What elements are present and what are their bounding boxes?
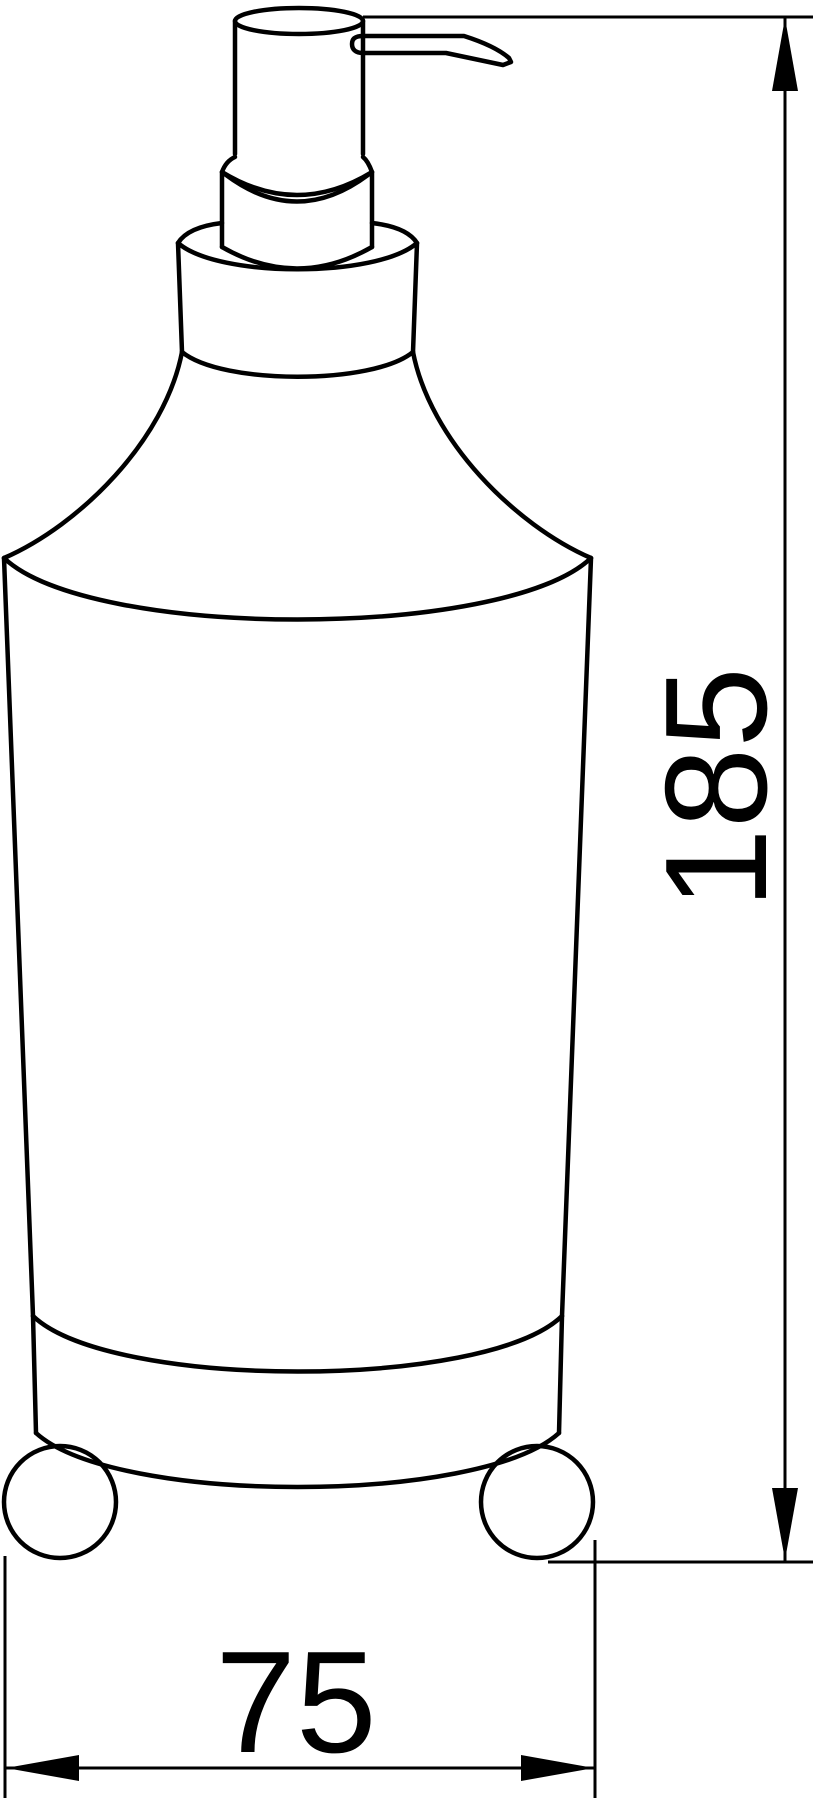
body-top-arc — [4, 558, 591, 620]
foot-left — [4, 1446, 116, 1558]
shoulder-right — [413, 352, 591, 558]
pump-top-ellipse — [235, 8, 363, 34]
body-side-left — [4, 558, 33, 1316]
dispenser-technical-drawing: 185 75 — [0, 0, 814, 1800]
soap-dispenser-outline — [4, 8, 593, 1558]
drawing-sheet: 185 75 — [0, 0, 814, 1800]
pump-actuator — [235, 8, 363, 154]
neck-back-arc-left — [178, 223, 222, 243]
body-side-right — [562, 558, 591, 1316]
width-arrow-left — [6, 1755, 79, 1781]
neck-side-right — [413, 243, 417, 352]
neck-side-left — [178, 243, 182, 352]
base-ring — [33, 1316, 562, 1487]
collar-back-rim-left — [222, 157, 235, 172]
width-dimension-label: 75 — [215, 1621, 376, 1783]
height-arrow-down — [772, 1488, 798, 1560]
bottle-shoulder — [4, 352, 591, 558]
pump-collar — [222, 157, 372, 269]
base-top-arc — [33, 1316, 562, 1372]
collar-back-rim-right — [363, 157, 372, 172]
neck-front-arc — [178, 243, 417, 269]
shoulder-left — [4, 352, 182, 558]
neck-back-arc-right — [372, 223, 417, 243]
height-dimension: 185 — [363, 17, 813, 1562]
bottle-neck — [178, 223, 417, 377]
pump-spout — [352, 36, 511, 65]
width-dimension: 75 — [5, 1540, 595, 1798]
base-side-right — [559, 1316, 562, 1433]
base-side-left — [33, 1316, 36, 1433]
collar-front-rim-outer — [222, 172, 372, 195]
foot-right — [481, 1446, 593, 1558]
height-arrow-up — [772, 18, 798, 91]
collar-front-rim-inner — [226, 175, 368, 202]
neck-bottom-arc — [182, 352, 413, 377]
height-dimension-label: 185 — [635, 667, 797, 909]
bottle-body — [4, 558, 591, 1316]
width-arrow-right — [521, 1755, 594, 1781]
base-bottom-arc — [36, 1433, 559, 1487]
